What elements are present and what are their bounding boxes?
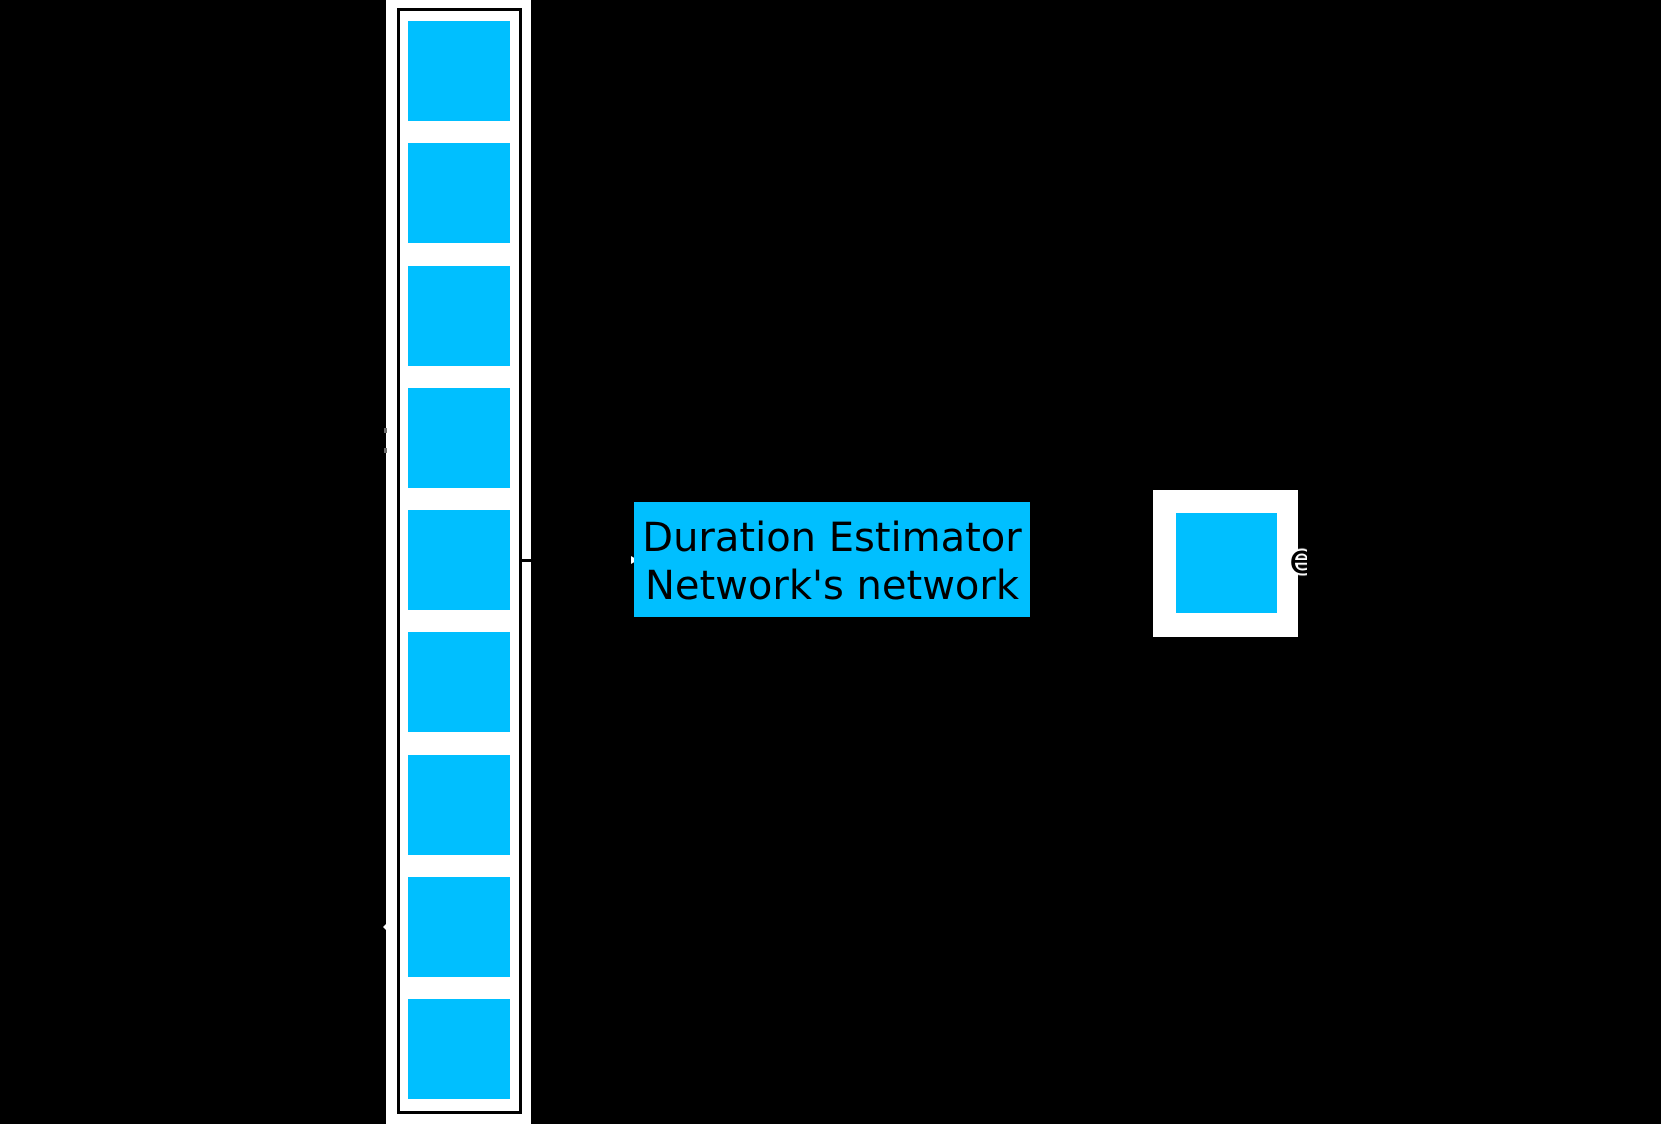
phoneme-sequence-panel — [386, 0, 531, 1124]
phoneme-embedding-block — [408, 143, 510, 243]
duration-estimator-box: Duration Estimator Network's network — [634, 502, 1030, 617]
phoneme-embedding-block — [408, 510, 510, 610]
phoneme-embedding-block — [408, 877, 510, 977]
arrow-tip-remnant — [383, 923, 387, 931]
duration-output-block — [1176, 513, 1277, 613]
output-label-clip: e — [1289, 534, 1307, 586]
figure-canvas: Duration Estimator Network's network e — [0, 0, 1661, 1124]
arrow-line-estimator-to-output — [1030, 560, 1150, 563]
phoneme-embedding-block — [408, 755, 510, 855]
phoneme-embedding-block — [408, 999, 510, 1099]
arrow-line-column-to-estimator — [519, 559, 635, 562]
estimator-label-line2: Network's network — [645, 562, 1019, 610]
output-panel — [1153, 490, 1298, 637]
text-remnant-dash — [384, 428, 387, 433]
text-remnant-dash — [384, 448, 387, 453]
output-label: e — [1289, 540, 1307, 580]
phoneme-embedding-block — [408, 632, 510, 732]
estimator-label-line1: Duration Estimator — [642, 514, 1021, 562]
phoneme-embedding-block — [408, 388, 510, 488]
phoneme-embedding-block — [408, 266, 510, 366]
phoneme-embedding-block — [408, 21, 510, 121]
